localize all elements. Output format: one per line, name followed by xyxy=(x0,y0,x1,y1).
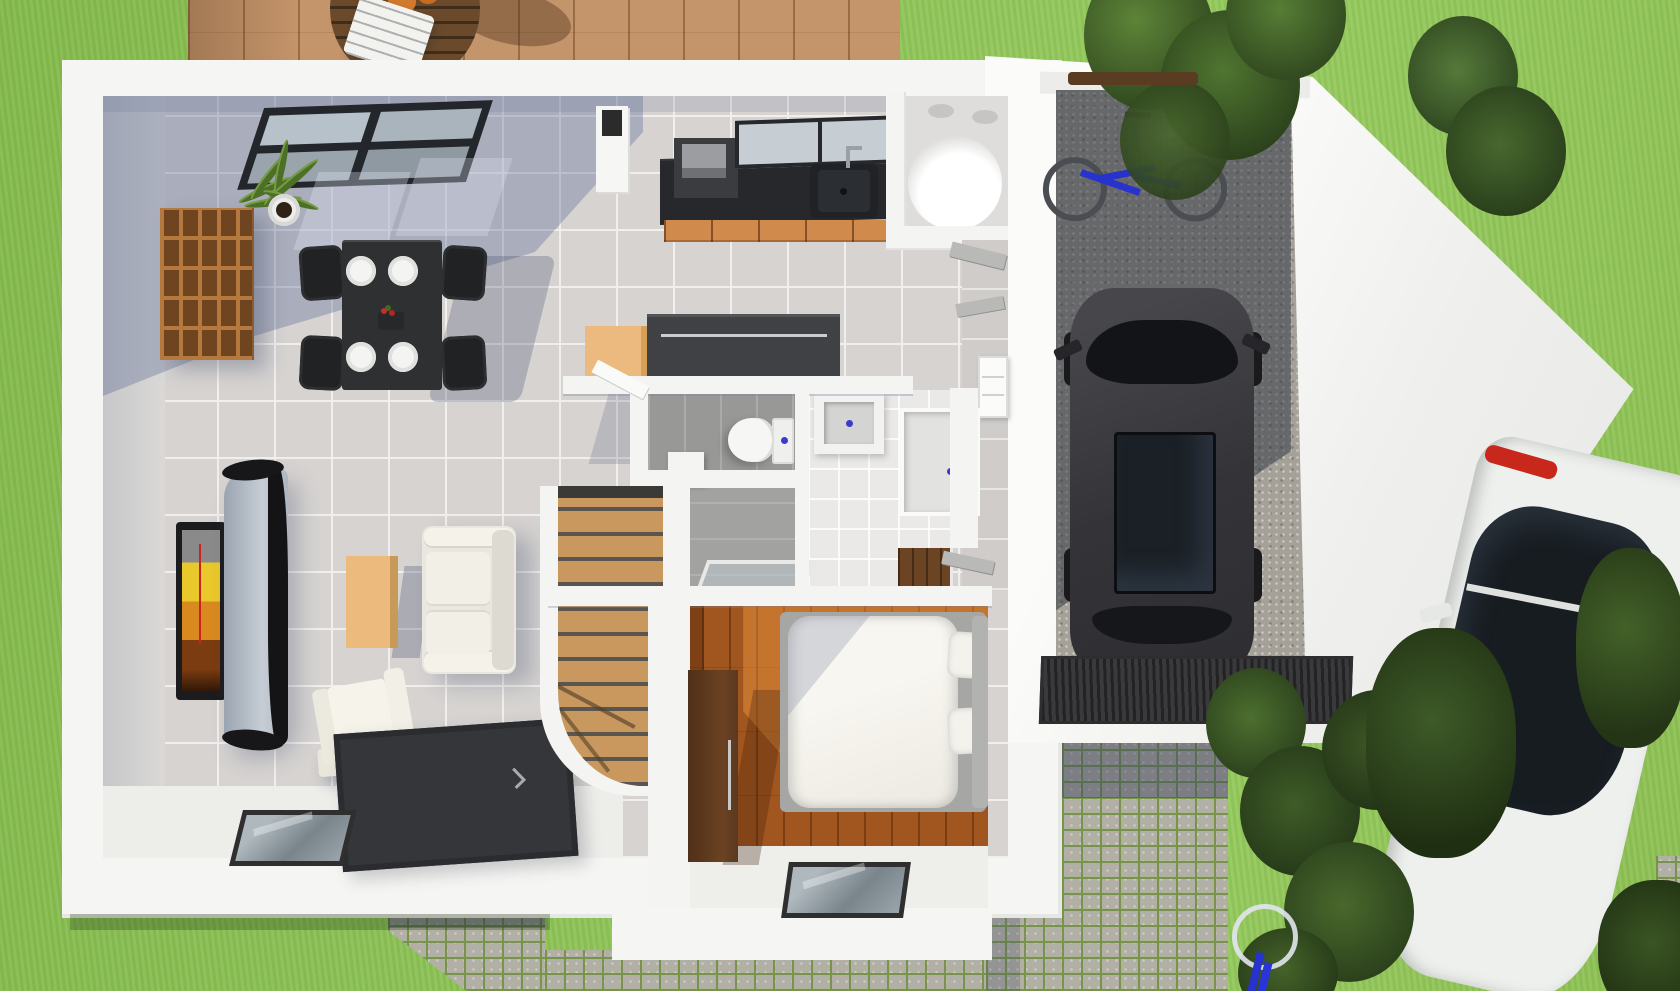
dining-chair xyxy=(440,245,488,302)
round-tub xyxy=(908,136,1002,230)
tree-canopy xyxy=(1120,80,1230,200)
bed-duvet xyxy=(788,616,958,808)
interior-wall xyxy=(795,390,809,590)
glass-floor-panel xyxy=(229,810,357,866)
toilet-bowl xyxy=(728,418,776,462)
roof-window-glass xyxy=(260,112,371,145)
plate xyxy=(346,256,376,286)
chimney-column xyxy=(596,106,628,192)
tree-over-car xyxy=(1366,628,1516,858)
chimney-flue xyxy=(602,110,622,136)
hedge xyxy=(1068,72,1198,85)
bed-headboard xyxy=(972,616,988,808)
duvet-fold-shadow xyxy=(788,616,958,808)
kitchen-window xyxy=(735,115,901,169)
plate xyxy=(388,256,418,286)
tv-screen xyxy=(182,530,220,692)
kitchen-faucet xyxy=(846,146,850,168)
kitchen-cabinets xyxy=(664,220,888,242)
kitchen-island xyxy=(647,314,840,382)
tv-unit-black-edge xyxy=(268,466,288,746)
rug-logo xyxy=(505,768,526,789)
interior-wall xyxy=(663,486,690,590)
sink-drain xyxy=(840,188,847,195)
window-mullion xyxy=(818,122,822,162)
curved-tv-unit xyxy=(224,468,288,744)
sofa xyxy=(422,526,516,674)
cube-shelving-unit xyxy=(160,208,252,360)
car-windshield xyxy=(1086,320,1238,384)
sofa-cushion xyxy=(426,552,490,606)
sofa-backrest xyxy=(492,530,514,670)
ceiling-spot xyxy=(928,104,954,118)
garage-car xyxy=(1070,282,1258,682)
flush-button xyxy=(781,437,788,444)
stair-opening xyxy=(558,486,664,498)
ceiling-spot xyxy=(972,110,998,124)
basin-drain xyxy=(846,420,853,427)
tv-screen-detail xyxy=(199,544,201,644)
flower-centerpiece xyxy=(378,312,404,330)
glass-floor-panel xyxy=(781,862,911,918)
tree-over-car xyxy=(1576,548,1680,748)
tub-room-wall xyxy=(886,92,904,242)
tree-canopy xyxy=(1446,86,1566,216)
house-shadow-on-grass xyxy=(70,914,550,930)
kitchen-sink xyxy=(810,164,878,218)
plate xyxy=(346,342,376,372)
kitchen-oven xyxy=(674,138,738,198)
plate xyxy=(388,342,418,372)
interior-wall xyxy=(548,586,992,606)
hallway-sideboard xyxy=(978,356,1008,418)
car-sunroof xyxy=(1114,432,1216,594)
dining-chair xyxy=(299,335,346,391)
yard-bicycle-wheel xyxy=(1232,904,1298,970)
dining-chair xyxy=(441,335,488,391)
interior-wall xyxy=(950,388,978,548)
wardrobe-handle xyxy=(728,740,731,810)
garage-entrance-mat xyxy=(1039,656,1353,724)
interior-wall xyxy=(648,586,690,908)
sofa-cushion xyxy=(426,610,490,654)
wardrobe xyxy=(688,670,738,862)
plant-soil xyxy=(276,202,292,218)
wall-tv xyxy=(176,522,226,700)
deck-shadow xyxy=(188,0,298,66)
living-room-rug xyxy=(333,718,578,872)
oven-top xyxy=(682,144,726,178)
dining-chair xyxy=(298,245,346,302)
coffee-table xyxy=(346,556,398,648)
floor-plan-scene xyxy=(0,0,1680,991)
island-handle xyxy=(661,334,827,337)
